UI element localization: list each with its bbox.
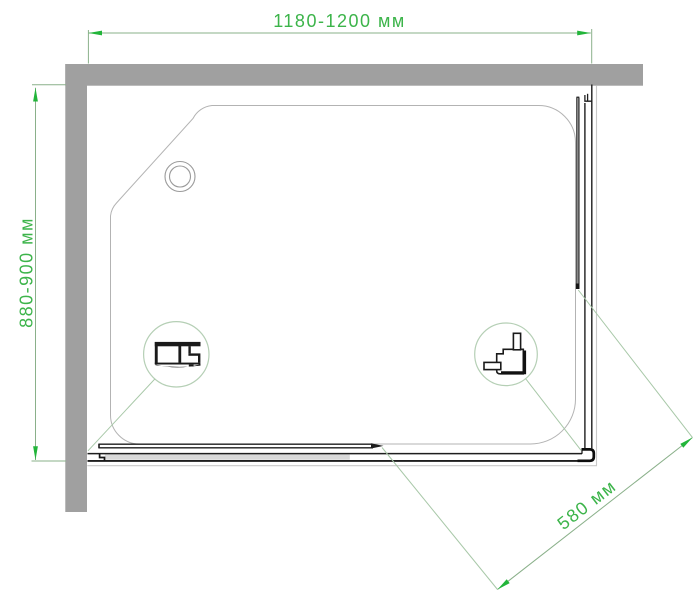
svg-text:880-900 мм: 880-900 мм (17, 217, 37, 328)
svg-text:1180-1200 мм: 1180-1200 мм (273, 11, 406, 31)
